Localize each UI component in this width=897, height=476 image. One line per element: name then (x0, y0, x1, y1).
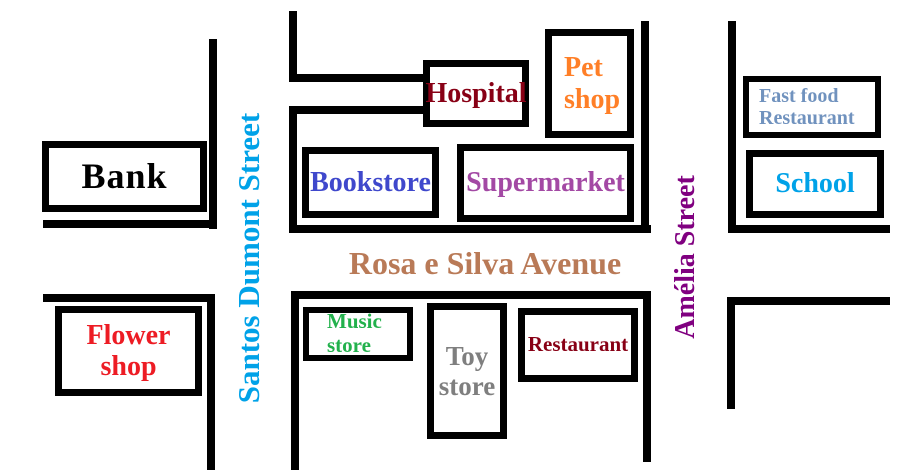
place-bank: Bank (42, 141, 207, 212)
place-flower-shop: Flower shop (55, 306, 202, 396)
street-map: Santos Dumont Street Rosa e Silva Avenue… (0, 0, 897, 476)
place-bookstore: Bookstore (302, 147, 439, 218)
place-school: School (746, 150, 884, 218)
street-line (289, 106, 297, 233)
street-name: Rosa e Silva Avenue (349, 247, 621, 279)
place-label: School (775, 168, 854, 199)
place-label: Hospital (425, 78, 526, 109)
place-label: Fast food Restaurant (759, 85, 875, 130)
place-label: Bank (81, 156, 167, 196)
street-line (641, 21, 649, 233)
place-music-store: Music store (303, 307, 413, 361)
place-label: Toy store (434, 341, 500, 401)
street-label-santos-dumont: Santos Dumont Street (232, 88, 264, 428)
street-line (289, 11, 297, 81)
place-fast-food-restaurant: Fast food Restaurant (743, 76, 881, 138)
street-label-amelia: Amélia Street (671, 152, 701, 362)
place-hospital: Hospital (423, 60, 529, 127)
street-label-rosa-e-silva: Rosa e Silva Avenue (335, 246, 635, 280)
place-label: Supermarket (466, 167, 625, 198)
street-line (728, 21, 736, 233)
street-line (289, 106, 429, 114)
street-line (289, 225, 651, 233)
street-line (209, 39, 217, 229)
place-label: Music store (327, 310, 407, 357)
street-line (643, 291, 651, 462)
street-line (727, 297, 735, 409)
place-restaurant: Restaurant (518, 308, 638, 382)
street-line (43, 294, 215, 302)
street-line (43, 220, 217, 228)
street-line (727, 297, 890, 305)
place-toy-store: Toy store (427, 303, 507, 439)
street-name: Amélia Street (672, 175, 700, 339)
place-label: Pet shop (564, 52, 627, 115)
street-line (291, 291, 299, 470)
street-line (291, 291, 651, 299)
street-line (207, 294, 215, 470)
place-label: Bookstore (310, 167, 431, 198)
place-label: Restaurant (528, 333, 628, 357)
street-line (728, 225, 890, 233)
street-name: Santos Dumont Street (233, 113, 264, 404)
place-supermarket: Supermarket (457, 144, 634, 222)
place-pet-shop: Pet shop (545, 29, 634, 138)
street-line (289, 74, 429, 82)
place-label: Flower shop (62, 320, 195, 383)
